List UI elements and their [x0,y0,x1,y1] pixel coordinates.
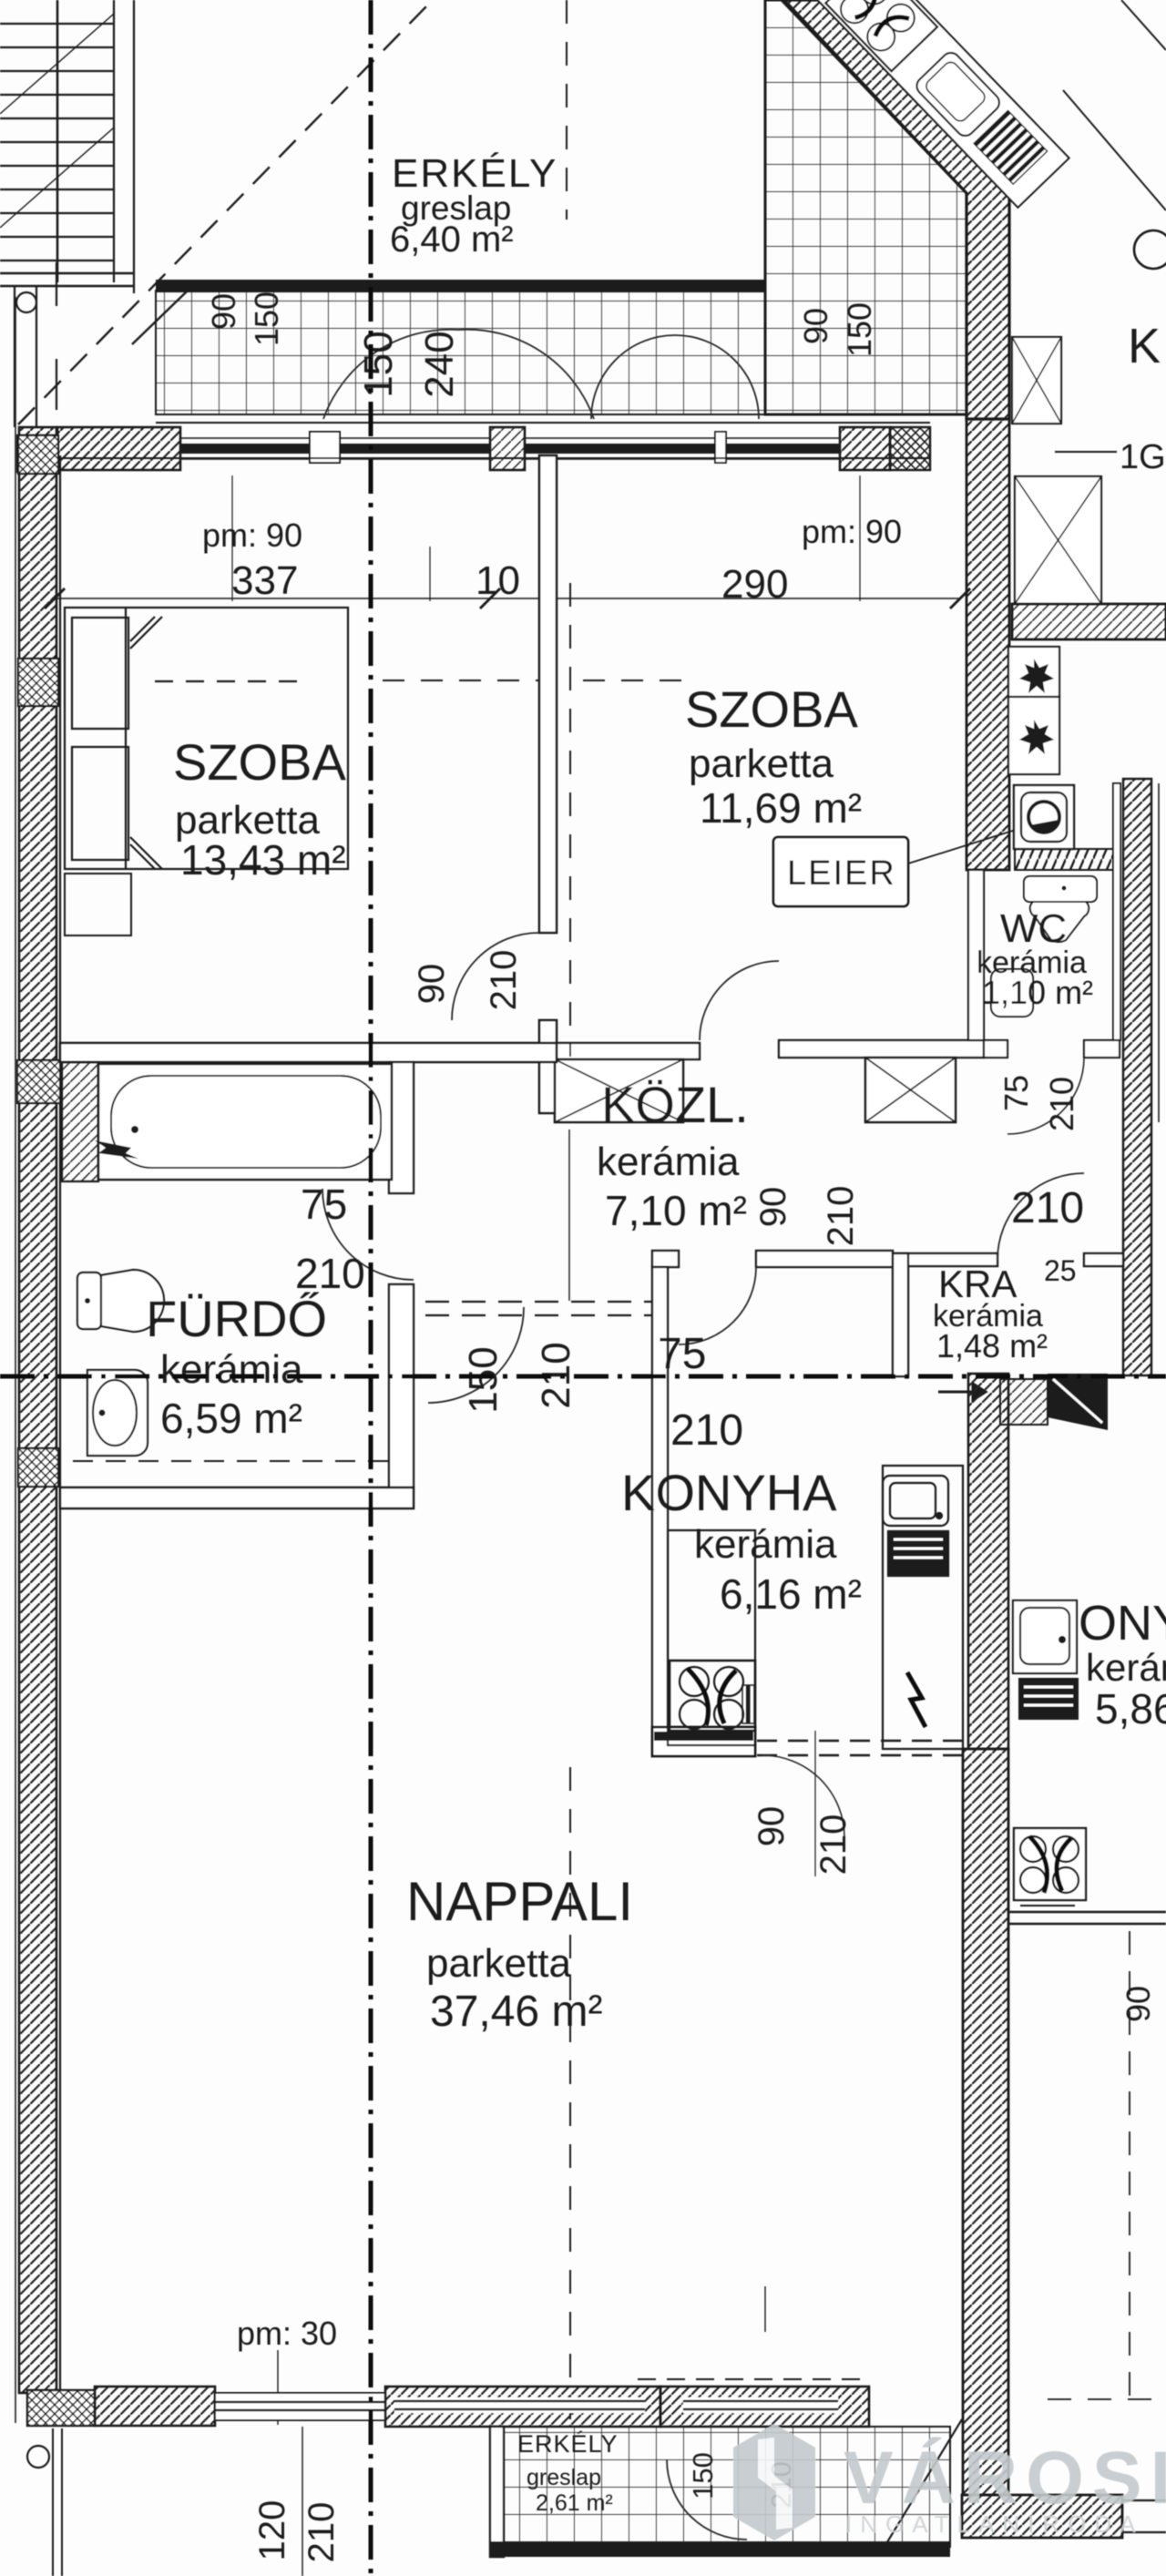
svg-text:6,40 m²: 6,40 m² [390,220,514,260]
svg-text:290: 290 [721,562,788,607]
svg-text:120: 120 [252,2500,292,2561]
svg-text:KÖZL.: KÖZL. [601,1076,749,1133]
svg-text:INGATLANIRODA: INGATLANIRODA [845,2510,1143,2538]
svg-text:KONYHA: KONYHA [621,1464,837,1521]
svg-text:11,69 m²: 11,69 m² [700,784,862,832]
svg-text:90: 90 [205,293,242,330]
svg-text:NAPPALI: NAPPALI [406,1871,633,1932]
svg-text:6,59 m²: 6,59 m² [160,1395,302,1442]
svg-text:2,61 m²: 2,61 m² [536,2490,613,2516]
svg-text:kerámia: kerámia [597,1140,740,1184]
svg-text:SZOBA: SZOBA [173,733,346,791]
svg-text:kerámia: kerámia [694,1522,837,1567]
svg-text:10: 10 [476,558,520,603]
svg-text:1G: 1G [1120,438,1166,476]
svg-text:pm: 90: pm: 90 [202,516,302,554]
svg-text:greslap: greslap [527,2465,601,2490]
svg-text:25: 25 [1044,1254,1077,1287]
svg-text:LEIER: LEIER [787,854,896,893]
svg-text:90: 90 [412,964,452,1005]
svg-text:150: 150 [687,2452,719,2499]
svg-text:90: 90 [752,1806,792,1847]
svg-text:kerámia: kerámia [1086,1646,1166,1689]
svg-text:210: 210 [302,2502,342,2563]
svg-text:150: 150 [841,302,878,357]
svg-text:FÜRDŐ: FÜRDŐ [146,1290,327,1347]
svg-text:6,16 m²: 6,16 m² [720,1570,862,1618]
svg-text:13,43 m²: 13,43 m² [180,836,346,884]
svg-text:90: 90 [1120,1986,1157,2022]
svg-text:90: 90 [753,1187,793,1228]
svg-text:75: 75 [658,1330,706,1378]
svg-text:210: 210 [821,1186,861,1247]
svg-text:kerámia: kerámia [160,1347,303,1392]
svg-text:37,46 m²: 37,46 m² [430,1988,602,2036]
svg-text:5,86 m²: 5,86 m² [1095,1685,1166,1733]
svg-text:150: 150 [356,331,401,397]
svg-text:SZOBA: SZOBA [685,680,858,738]
svg-text:75: 75 [997,1075,1035,1111]
svg-text:pm: 30: pm: 30 [237,2315,337,2352]
svg-text:90: 90 [797,308,834,344]
svg-text:210: 210 [484,950,524,1011]
svg-text:150: 150 [248,291,285,346]
svg-text:150: 150 [461,1346,506,1413]
svg-text:7,10 m²: 7,10 m² [605,1187,747,1234]
svg-text:240: 240 [417,331,462,397]
svg-text:1,48 m²: 1,48 m² [936,1327,1048,1365]
svg-text:75: 75 [301,1181,347,1228]
svg-text:337: 337 [231,558,298,603]
svg-text:210: 210 [670,1406,743,1455]
svg-text:1,10 m²: 1,10 m² [982,974,1093,1011]
svg-text:K: K [1128,319,1161,373]
svg-text:parketta: parketta [426,1941,572,1986]
svg-text:210: 210 [1011,1184,1084,1232]
svg-text:210: 210 [813,1814,854,1876]
svg-text:ERKÉLY: ERKÉLY [517,2430,619,2458]
svg-text:VÁROSI: VÁROSI [844,2437,1166,2520]
svg-text:parketta: parketta [689,741,834,786]
svg-text:WC: WC [1000,906,1067,951]
svg-text:pm: 90: pm: 90 [802,513,902,550]
svg-text:210: 210 [1043,1077,1080,1131]
